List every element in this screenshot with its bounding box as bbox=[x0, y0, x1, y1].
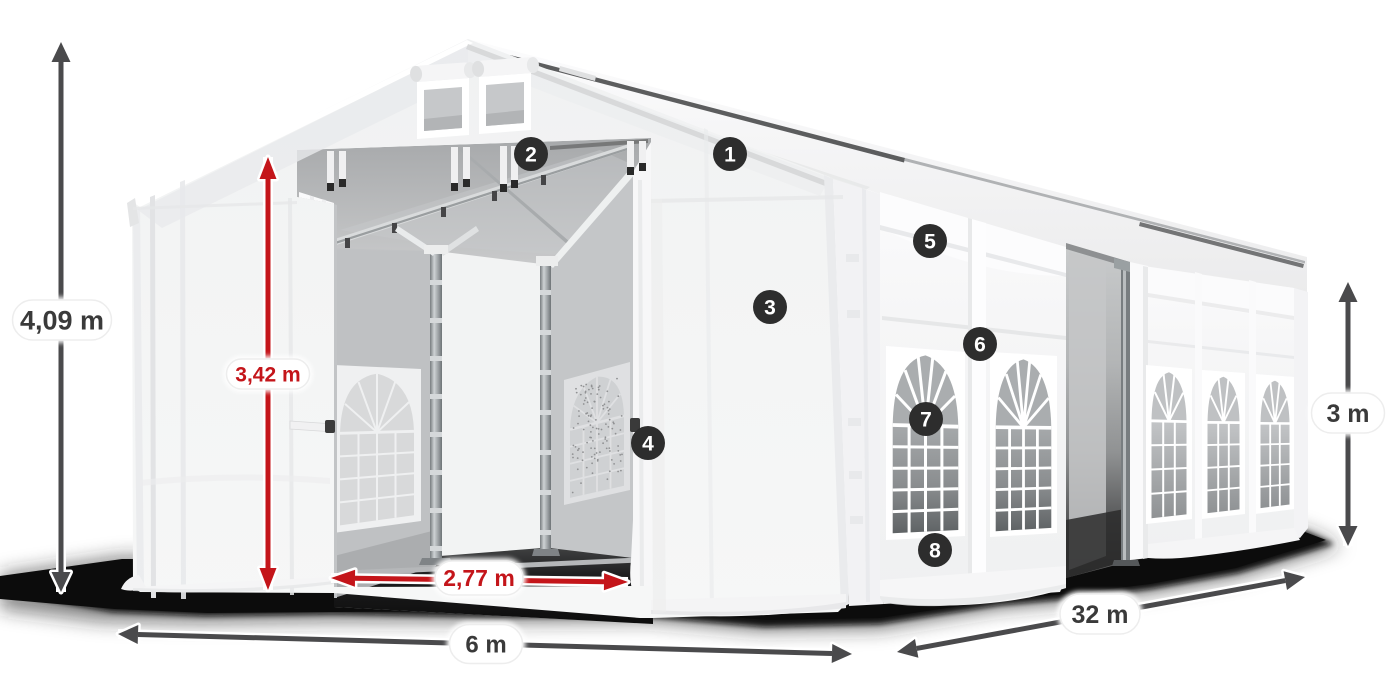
svg-text:3 m: 3 m bbox=[1326, 400, 1369, 428]
svg-text:8: 8 bbox=[929, 540, 941, 563]
svg-text:4: 4 bbox=[642, 433, 654, 456]
svg-text:32 m: 32 m bbox=[1072, 601, 1129, 629]
svg-text:3,42 m: 3,42 m bbox=[235, 364, 300, 387]
svg-text:7: 7 bbox=[920, 409, 932, 432]
svg-text:1: 1 bbox=[724, 144, 736, 167]
svg-text:5: 5 bbox=[924, 231, 936, 254]
svg-text:2: 2 bbox=[525, 144, 537, 167]
svg-text:3: 3 bbox=[764, 297, 776, 320]
svg-text:2,77 m: 2,77 m bbox=[443, 565, 515, 591]
svg-text:4,09 m: 4,09 m bbox=[20, 306, 104, 336]
svg-text:6 m: 6 m bbox=[465, 632, 506, 659]
svg-text:6: 6 bbox=[974, 334, 986, 357]
